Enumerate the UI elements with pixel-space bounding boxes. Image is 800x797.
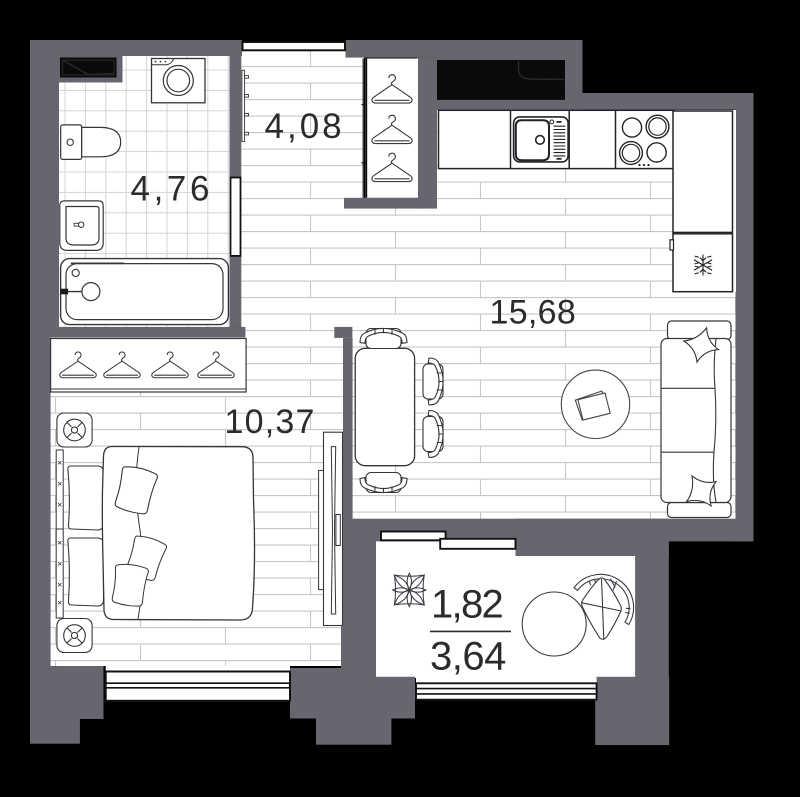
svg-text:4,08: 4,08 [265,107,345,146]
svg-text:4,76: 4,76 [131,170,214,209]
svg-text:3,64: 3,64 [430,635,506,679]
svg-text:1,82: 1,82 [431,583,503,627]
svg-text:15,68: 15,68 [490,294,577,332]
svg-text:10,37: 10,37 [225,403,316,441]
